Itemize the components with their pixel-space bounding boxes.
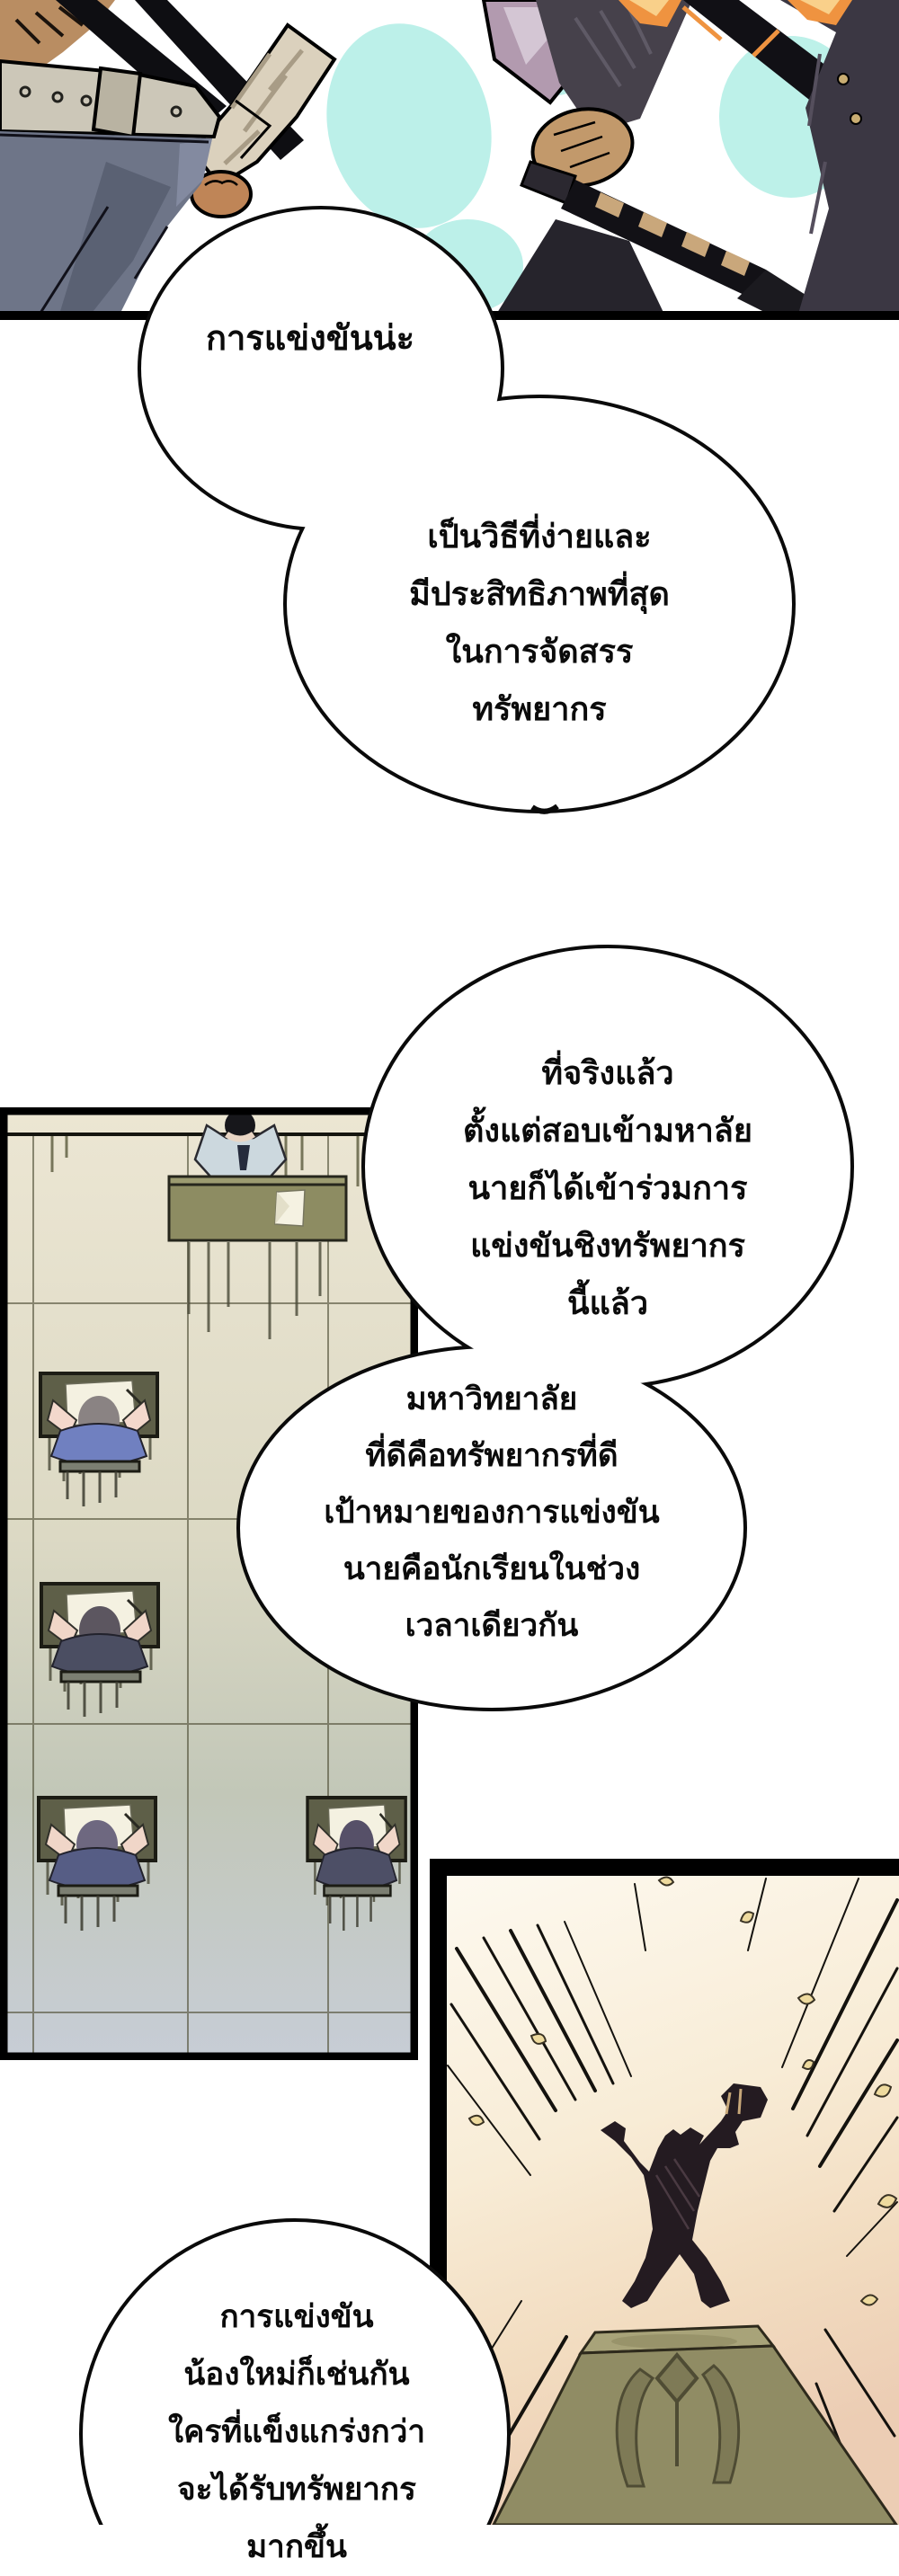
panel-border-top xyxy=(430,1859,899,1876)
speech-bubble-1-text: การแข่งขันน่ะ xyxy=(130,311,490,365)
speech-bubble-5-text: การแข่งขัน น้องใหม่ก็เช่นกัน ใครที่แข็งแ… xyxy=(108,2288,485,2576)
speech-bubble-3-text: ที่จริงแล้ว ตั้งแต่สอบเข้ามหาลัย นายก็ได… xyxy=(378,1045,838,1333)
speech-bubble-2-text: เป็นวิธีที่ง่ายและ มีประสิทธิภาพที่สุด ใ… xyxy=(319,509,760,739)
speech-bubble-4-text: มหาวิทยาลัย ที่ดีคือทรัพยากรที่ดี เป้าหม… xyxy=(258,1372,725,1655)
